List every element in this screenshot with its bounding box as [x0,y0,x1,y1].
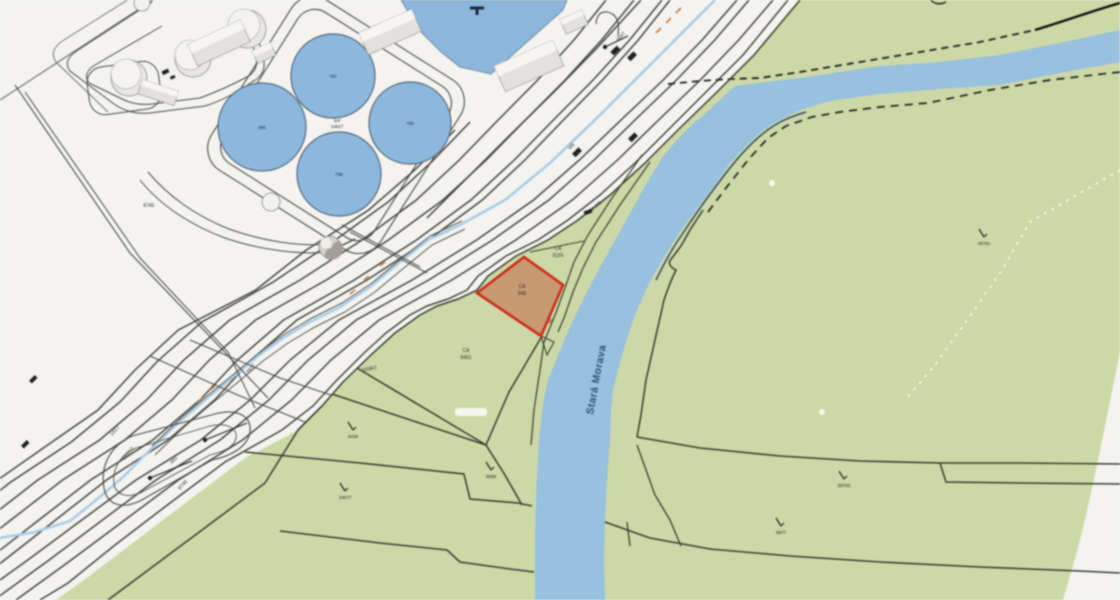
svg-text:2of: 2of [334,118,341,123]
svg-text:9165: 9165 [552,253,563,259]
svg-text:48781: 48781 [978,241,991,246]
svg-text:89763: 89763 [838,483,851,488]
svg-text:14617: 14617 [331,124,344,129]
svg-text:24677: 24677 [339,495,352,500]
svg-text:795: 795 [406,121,414,126]
svg-text:848: 848 [518,291,527,297]
svg-text:CA: CA [519,284,527,290]
svg-text:798: 798 [335,172,343,177]
svg-text:4746: 4746 [143,203,154,209]
svg-text:CA: CA [555,246,563,252]
svg-text:CA: CA [463,348,471,354]
svg-text:797: 797 [329,74,337,79]
svg-text:9599: 9599 [486,474,497,479]
svg-text:9977: 9977 [776,530,787,535]
svg-text:6438: 6438 [348,434,359,439]
svg-text:966: 966 [258,125,266,130]
svg-text:8461: 8461 [460,355,471,361]
